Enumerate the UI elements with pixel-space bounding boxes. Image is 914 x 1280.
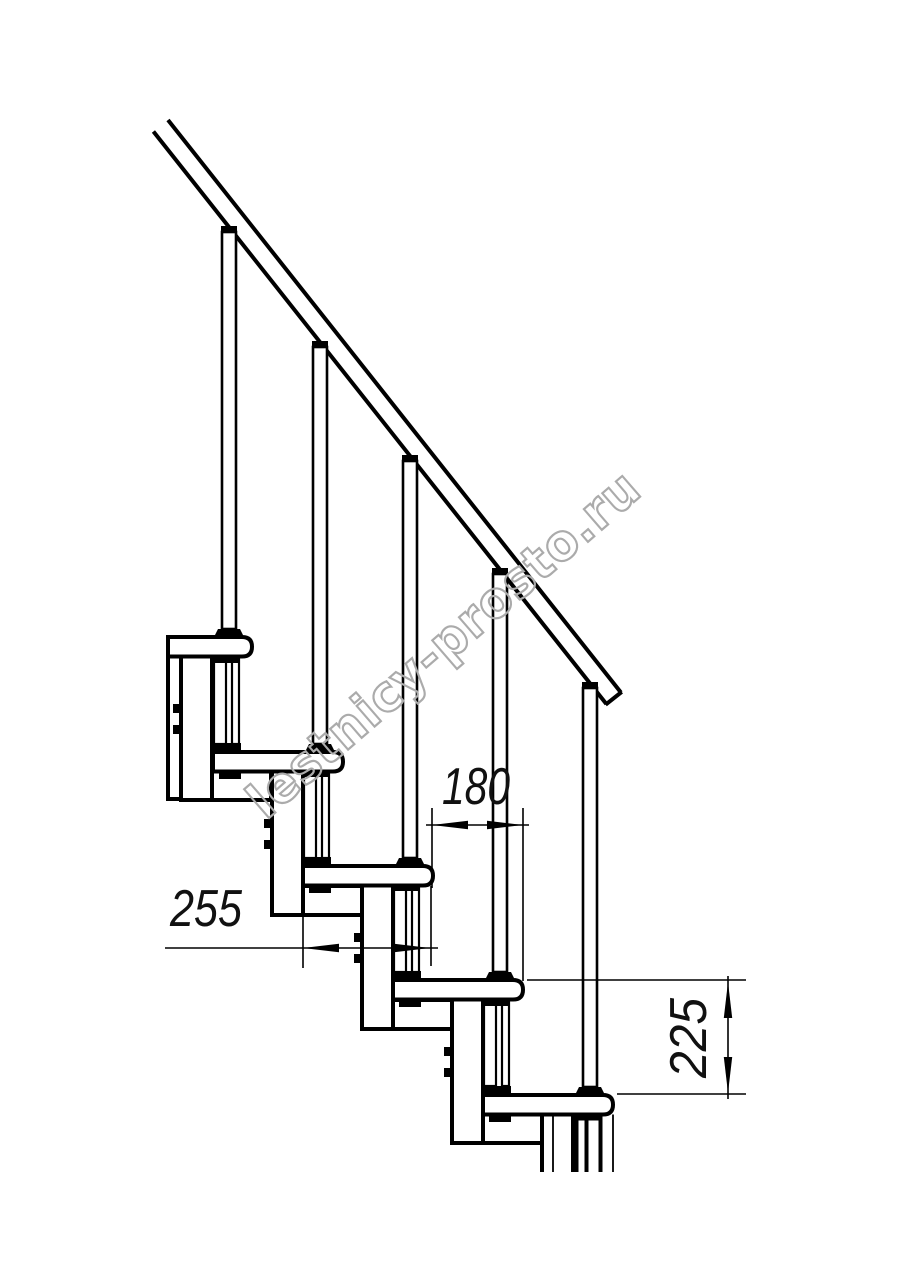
baluster-2 <box>305 341 335 752</box>
baluster-5 <box>575 682 605 1095</box>
dimension-step-run: 180 <box>426 758 529 981</box>
support-column-4 <box>452 999 483 1143</box>
tread-nut <box>489 1115 511 1123</box>
dimension-step-rise: 225 <box>527 976 746 1099</box>
bolt-icon <box>173 704 182 713</box>
baluster-shaft <box>583 688 597 1087</box>
bolt-icon <box>173 725 182 734</box>
rear-rod <box>232 657 239 744</box>
arrow-left-icon <box>303 944 339 952</box>
rear-rod-cut <box>577 1115 601 1173</box>
support-column-1 <box>181 656 212 800</box>
dimension-label-step-rise: 225 <box>660 997 718 1079</box>
support-column-5 <box>542 1115 573 1173</box>
tread-1 <box>168 637 252 657</box>
rear-rod <box>394 885 406 972</box>
bolt-icon <box>354 954 363 963</box>
baluster-1 <box>214 226 244 637</box>
bolt-icon <box>444 1068 453 1077</box>
rear-rod <box>502 1000 509 1086</box>
rear-rod <box>214 657 226 744</box>
arrow-up-icon <box>724 982 732 1018</box>
rod-top-cap <box>393 884 419 891</box>
bolt-icon <box>354 933 363 942</box>
cut-lines <box>553 1115 613 1173</box>
tread-3 <box>303 866 433 886</box>
rear-rod <box>412 885 419 972</box>
rod-top-cap <box>213 656 239 663</box>
baluster-foot <box>395 858 425 866</box>
baluster-foot <box>214 629 244 637</box>
dimension-label-step-run: 180 <box>442 758 510 816</box>
extension-lines <box>432 808 523 981</box>
rear-rod <box>484 1000 496 1086</box>
baluster-foot <box>575 1087 605 1095</box>
dimension-label-tread-depth: 255 <box>169 880 243 938</box>
baluster-shaft <box>313 347 327 744</box>
bolt-icon <box>264 840 273 849</box>
tread-nut <box>309 886 331 894</box>
tread-5 <box>483 1095 613 1115</box>
support-column-3 <box>362 885 393 1029</box>
tread-4 <box>393 980 523 1000</box>
bolt-icon <box>444 1047 453 1056</box>
baluster-foot <box>485 972 515 980</box>
rod-top-cap <box>483 999 509 1006</box>
staircase-technical-drawing: 180 255 225 lestnicy-prosto.ru <box>0 0 914 1280</box>
tread-nut <box>399 1000 421 1008</box>
baluster-shaft <box>222 232 236 629</box>
arrow-down-icon <box>724 1057 732 1093</box>
arrow-left-icon <box>432 821 468 829</box>
tread-nut <box>219 772 241 780</box>
